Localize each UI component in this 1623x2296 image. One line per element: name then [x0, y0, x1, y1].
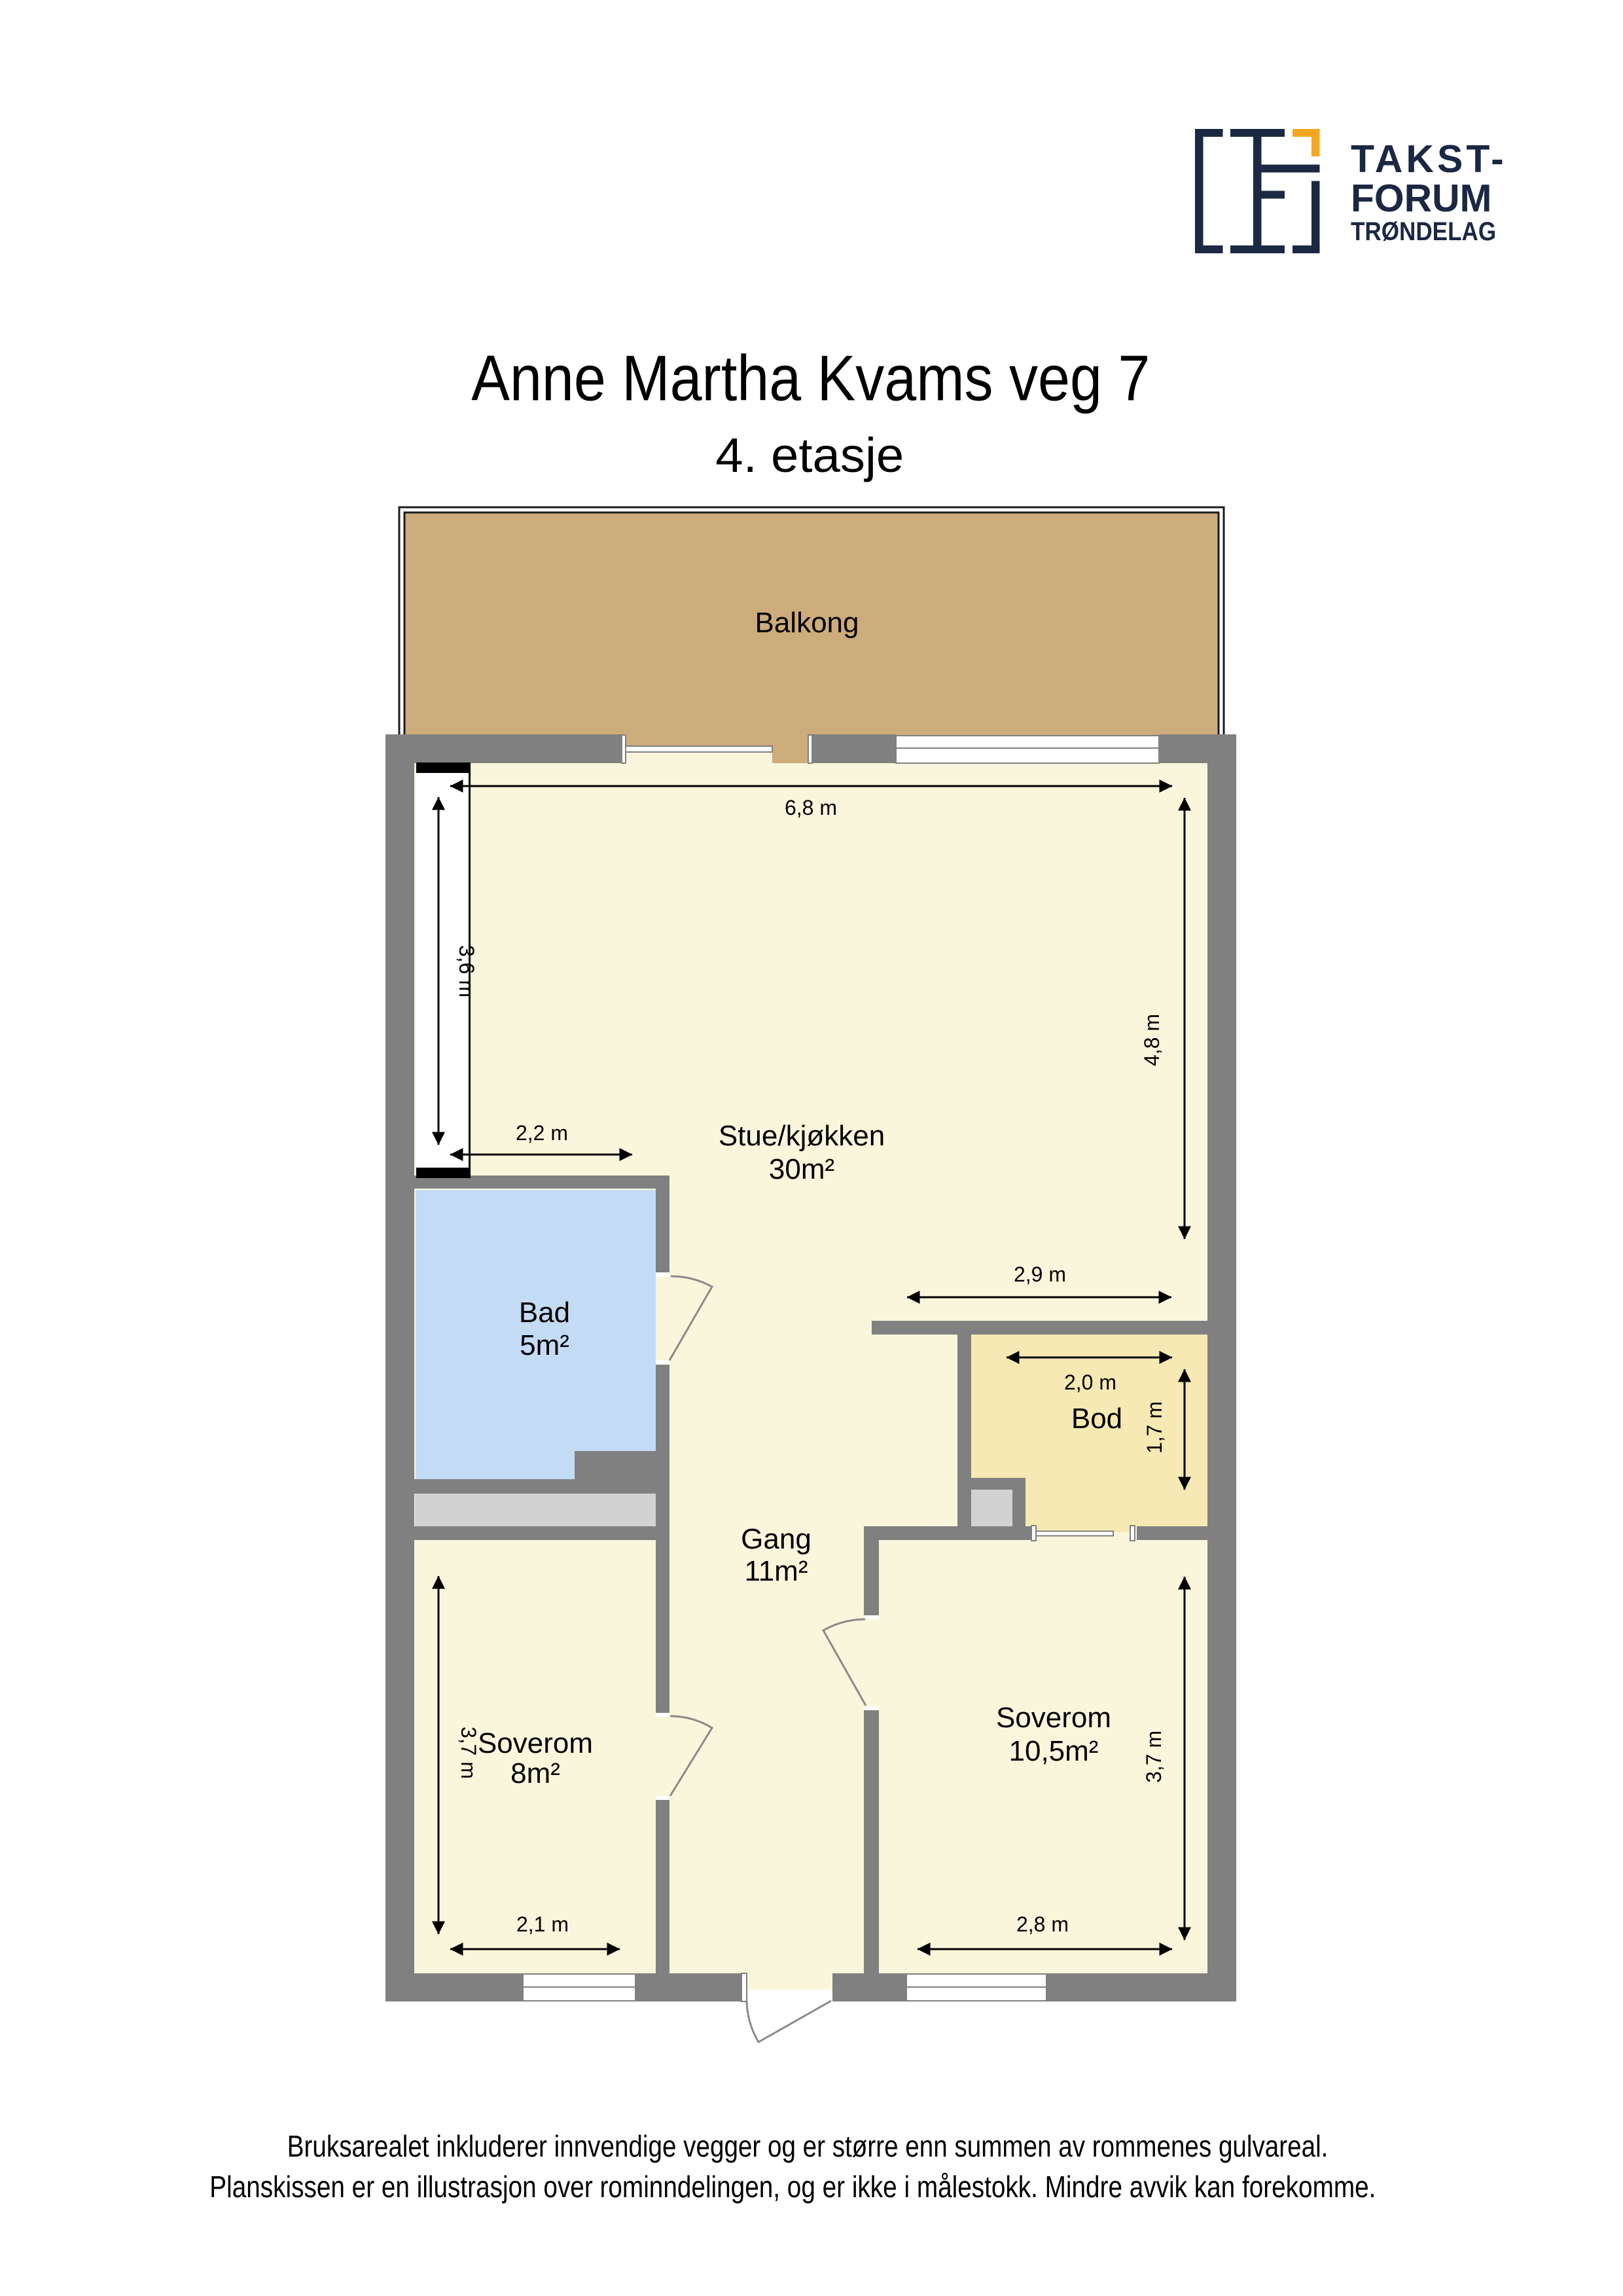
svg-text:Bruksarealet inkluderer innven: Bruksarealet inkluderer innvendige vegge… — [287, 2129, 1329, 2163]
svg-text:2,1 m: 2,1 m — [516, 1912, 569, 1936]
svg-text:Balkong: Balkong — [755, 607, 859, 639]
svg-text:10,5m²: 10,5m² — [1009, 1735, 1099, 1767]
svg-text:5m²: 5m² — [520, 1329, 569, 1361]
svg-text:4,8 m: 4,8 m — [1140, 1014, 1164, 1066]
svg-text:11m²: 11m² — [745, 1555, 808, 1587]
svg-text:3,7 m: 3,7 m — [457, 1727, 480, 1779]
svg-text:Soverom: Soverom — [478, 1727, 593, 1759]
svg-text:TAKST-: TAKST- — [1351, 137, 1504, 181]
svg-text:2,0 m: 2,0 m — [1064, 1371, 1116, 1394]
svg-text:Gang: Gang — [741, 1523, 811, 1555]
svg-text:Soverom: Soverom — [996, 1702, 1111, 1734]
svg-text:3,7 m: 3,7 m — [1142, 1731, 1166, 1783]
svg-text:3,6 m: 3,6 m — [455, 945, 478, 997]
svg-text:Stue/kjøkken: Stue/kjøkken — [719, 1120, 885, 1152]
svg-text:8m²: 8m² — [510, 1757, 560, 1789]
svg-text:TRØNDELAG: TRØNDELAG — [1351, 217, 1496, 246]
svg-text:2,2 m: 2,2 m — [516, 1121, 568, 1145]
svg-text:Anne Martha Kvams veg 7: Anne Martha Kvams veg 7 — [471, 342, 1150, 414]
svg-text:1,7 m: 1,7 m — [1143, 1401, 1166, 1454]
svg-text:2,9 m: 2,9 m — [1014, 1263, 1066, 1286]
svg-text:6,8 m: 6,8 m — [785, 796, 837, 819]
svg-text:Bod: Bod — [1071, 1403, 1122, 1435]
svg-text:30m²: 30m² — [769, 1153, 834, 1185]
svg-text:FORUM: FORUM — [1351, 177, 1492, 220]
svg-text:Planskissen er en illustrasjon: Planskissen er en illustrasjon over romi… — [209, 2170, 1376, 2204]
svg-text:Bad: Bad — [519, 1297, 570, 1329]
svg-text:4. etasje: 4. etasje — [715, 428, 904, 482]
svg-text:2,8 m: 2,8 m — [1016, 1912, 1069, 1936]
